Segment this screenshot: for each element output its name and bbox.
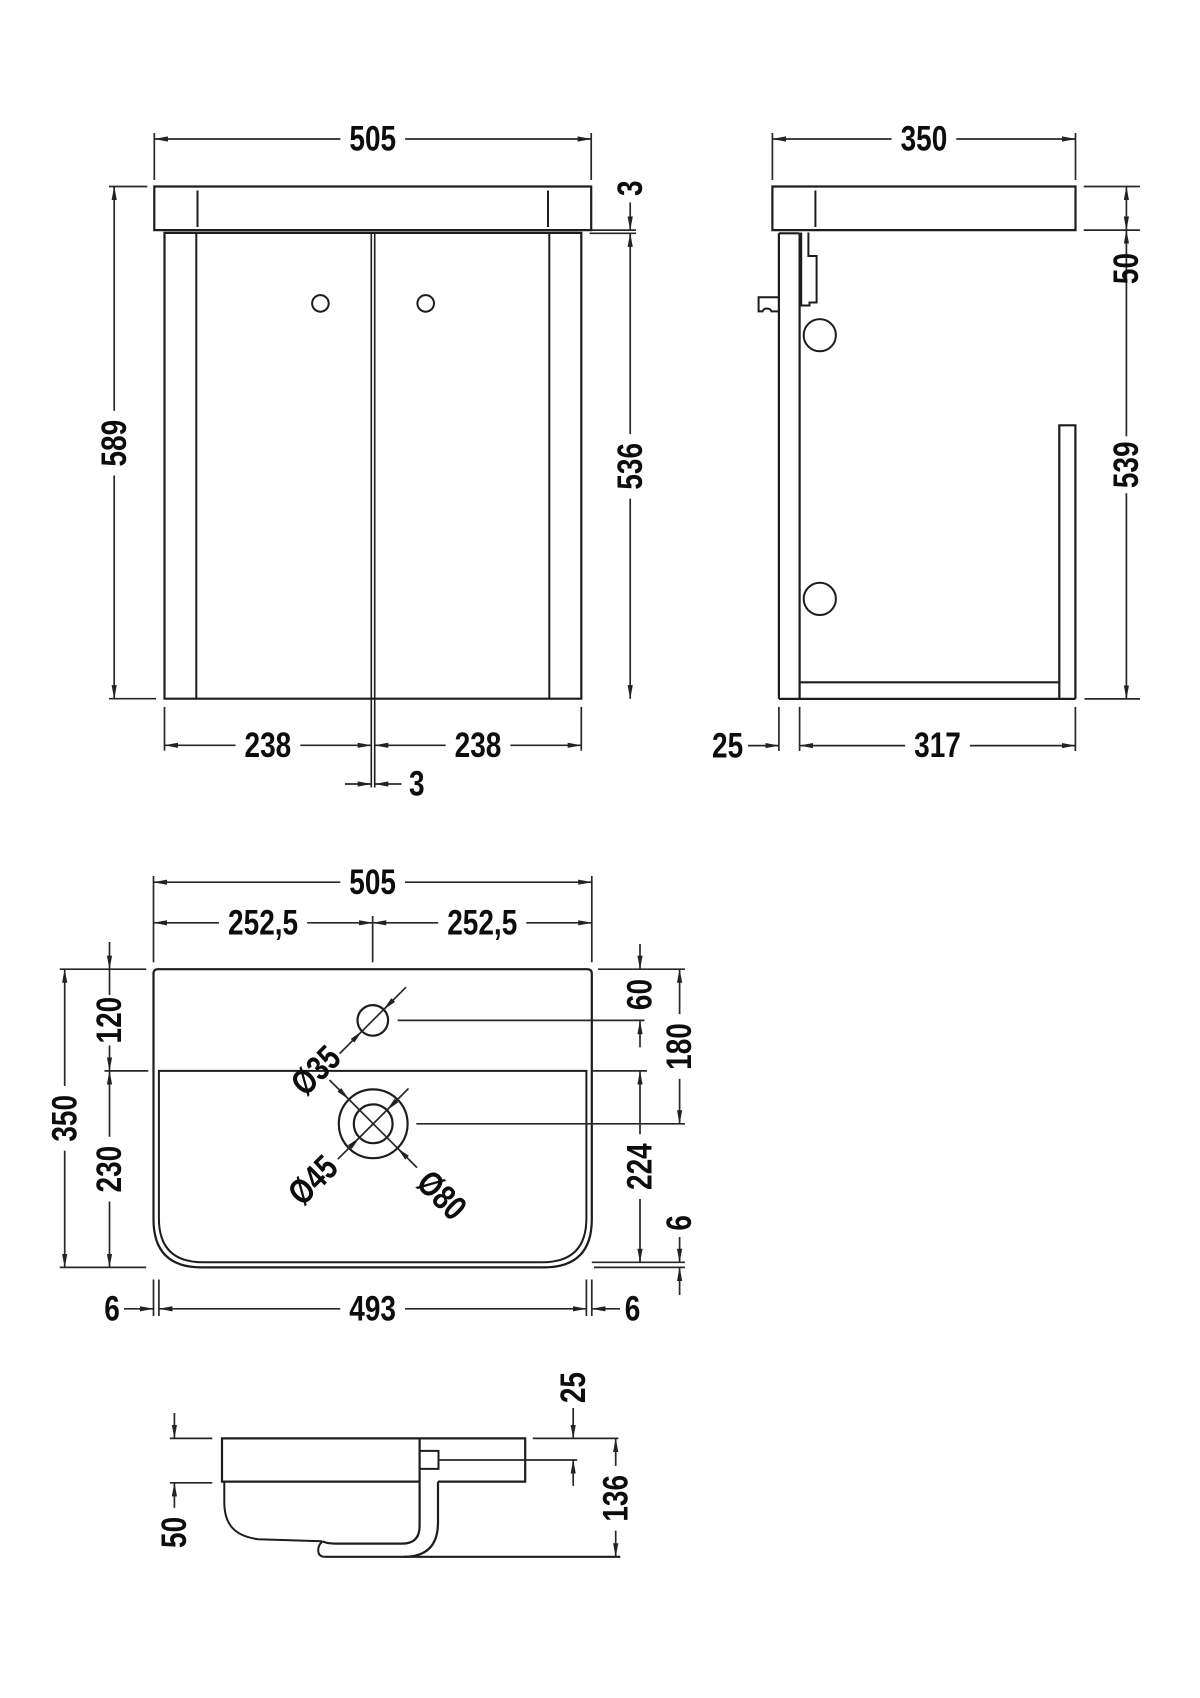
svg-text:252,5: 252,5	[228, 902, 298, 942]
svg-text:120: 120	[89, 997, 129, 1044]
svg-text:180: 180	[659, 1023, 699, 1070]
svg-text:224: 224	[620, 1143, 660, 1190]
svg-text:493: 493	[349, 1288, 396, 1328]
svg-text:6: 6	[104, 1289, 120, 1329]
svg-text:25: 25	[553, 1372, 593, 1403]
svg-text:50: 50	[154, 1517, 194, 1548]
svg-text:230: 230	[89, 1146, 129, 1193]
svg-text:536: 536	[610, 443, 650, 490]
svg-text:589: 589	[94, 420, 134, 467]
svg-text:505: 505	[349, 862, 396, 902]
svg-text:252,5: 252,5	[447, 902, 517, 942]
svg-text:25: 25	[712, 725, 743, 765]
svg-text:238: 238	[245, 725, 292, 765]
svg-text:317: 317	[914, 725, 961, 765]
svg-text:6: 6	[659, 1215, 699, 1231]
svg-text:539: 539	[1106, 441, 1146, 488]
svg-text:350: 350	[44, 1095, 84, 1142]
svg-text:60: 60	[620, 979, 660, 1010]
svg-text:6: 6	[625, 1289, 641, 1329]
svg-text:50: 50	[1106, 253, 1146, 284]
svg-text:350: 350	[901, 119, 948, 159]
svg-text:505: 505	[349, 119, 396, 159]
svg-text:3: 3	[610, 180, 650, 196]
svg-text:136: 136	[595, 1475, 635, 1522]
svg-text:238: 238	[455, 725, 502, 765]
svg-text:3: 3	[409, 763, 425, 803]
